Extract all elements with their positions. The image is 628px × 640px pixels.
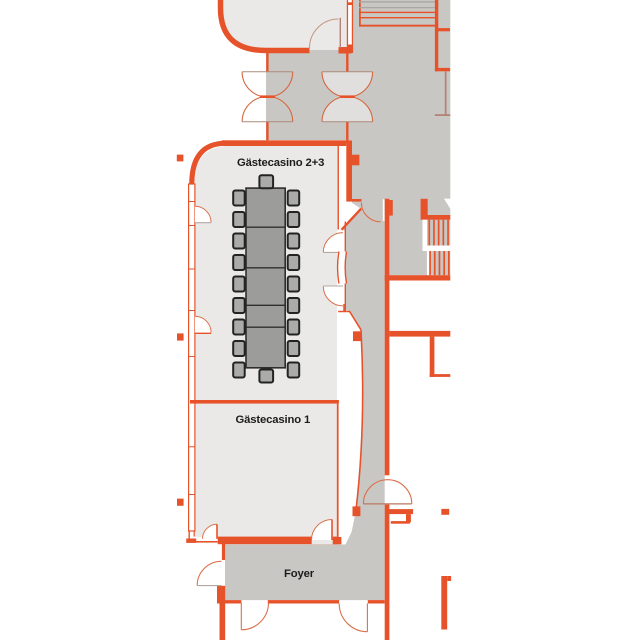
svg-text:Gästecasino 2+3: Gästecasino 2+3 [237, 157, 324, 169]
svg-text:Gästecasino 1: Gästecasino 1 [235, 414, 310, 426]
svg-text:Foyer: Foyer [284, 568, 315, 580]
